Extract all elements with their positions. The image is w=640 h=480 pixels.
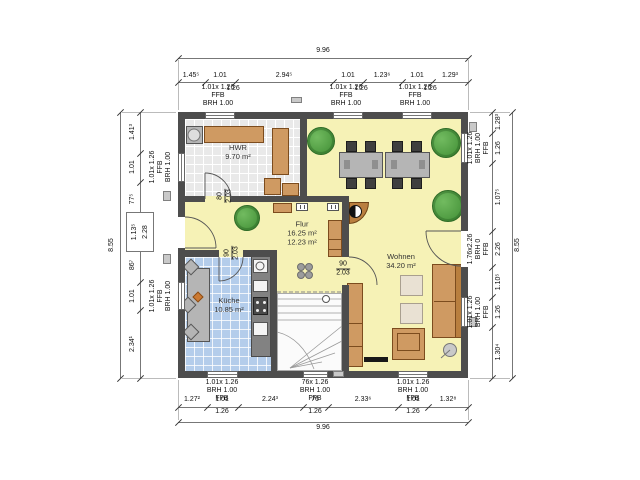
dim-sub-label: 1.26: [308, 408, 322, 416]
dim-label: 1.01: [129, 160, 137, 174]
floor-plan-drawing: HWR9.70 m² Flur16.25 m²12.23 m² Küche10.…: [0, 0, 640, 480]
window-annotation: 1.01x 1.26 BRH 1.00 FFB: [467, 296, 491, 329]
window-annotation: 1.01x 1.26 FFB BRH 1.00: [202, 84, 235, 108]
dim-label: 76: [311, 396, 319, 404]
dim-label: 1.26: [495, 141, 503, 155]
dim-label: 1.01: [215, 396, 229, 404]
dim-label: 1.41³: [129, 124, 137, 140]
dim-label: 1.26: [495, 305, 503, 319]
entrance-door-height: 2.28: [142, 225, 150, 239]
dim-label: 1.23⁶: [374, 72, 391, 80]
dim-total-top: 9.96: [316, 47, 330, 55]
window-annotation: 1.01x 1.26 FFB BRH 1.00: [149, 280, 173, 313]
dim-label: 2.26: [495, 242, 503, 256]
window-annotation: 1.01x 1.26 FFB BRH 1.00: [330, 84, 363, 108]
window-annotation: 1.01x 1.26 FFB BRH 1.00: [399, 84, 432, 108]
dim-label: 86⁷: [129, 260, 137, 270]
dim-label: 2.34¹: [129, 336, 137, 352]
dim-label: 1.28³: [495, 114, 503, 130]
dim-total-left: 8.55: [108, 238, 116, 252]
dim-total-right: 8.55: [514, 238, 522, 252]
window-annotation: 1.01x 1.26 FFB BRH 1.00: [149, 151, 173, 184]
dim-label: 1.29³: [442, 72, 458, 80]
dim-label: 1.01: [406, 396, 420, 404]
terrace-door-annotation: 1.76x2.26 BRH 0 FFB: [467, 234, 491, 265]
dim-label: 2.24³: [262, 396, 278, 404]
dim-label: 2.33⁶: [355, 396, 372, 404]
dim-label: 1.01: [410, 72, 424, 80]
dim-label: 77⁵: [129, 194, 137, 205]
entrance-door-width: 1.13⁵: [131, 224, 139, 241]
dim-label: 1.30⁴: [495, 344, 503, 361]
dim-label: 1.01: [341, 72, 355, 80]
dim-label: 1.27²: [184, 396, 200, 404]
dim-label: 1.45⁵: [183, 72, 200, 80]
dim-label: 1.07⁵: [495, 189, 503, 206]
dim-label: 2.94⁵: [276, 72, 293, 80]
dim-sub-label: 1.26: [406, 408, 420, 416]
dim-total-bottom: 9.96: [316, 424, 330, 432]
dim-sub-label: 1.26: [215, 408, 229, 416]
dim-label: 1.01: [129, 289, 137, 303]
dim-label: 1.01: [213, 72, 227, 80]
dim-label: 1.32⁸: [440, 396, 457, 404]
dim-label: 1.10⁵: [495, 274, 503, 291]
window-annotation: 1.01x 1.26 BRH 1.00 FFB: [467, 132, 491, 165]
